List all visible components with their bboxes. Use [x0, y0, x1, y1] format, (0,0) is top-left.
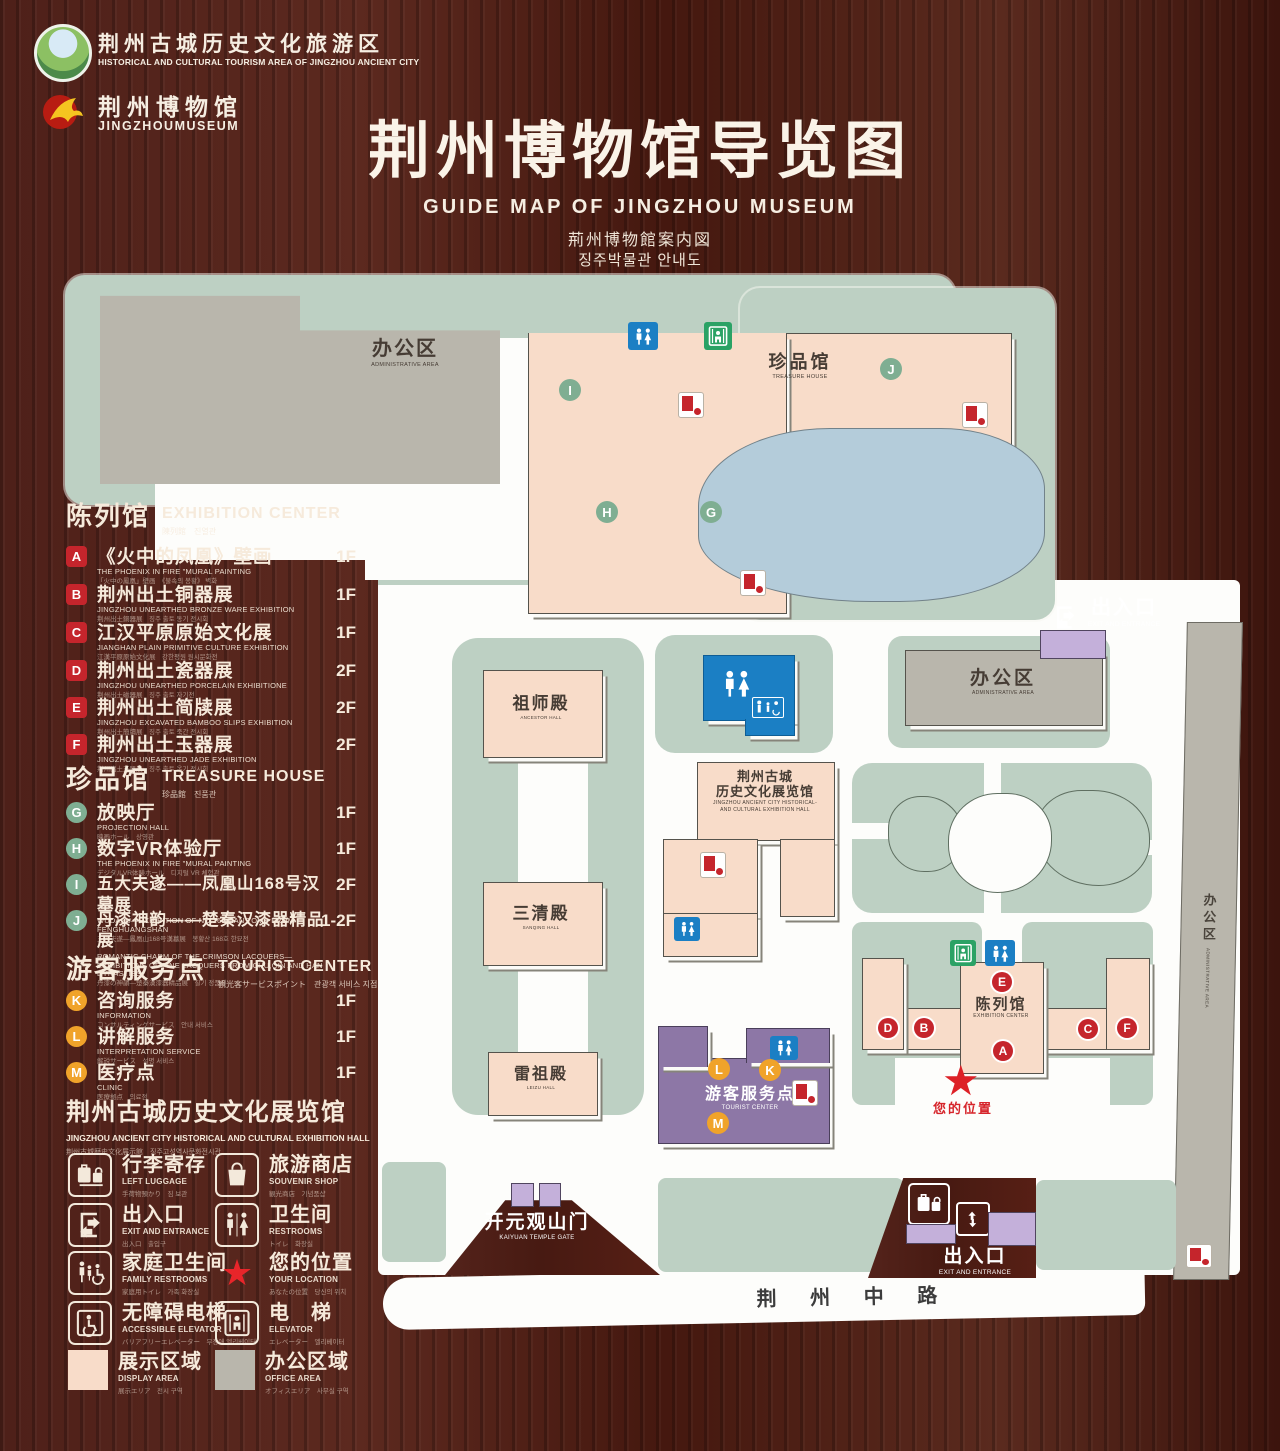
gate-pillar [539, 1183, 561, 1207]
floor-tag: 2F [336, 735, 356, 755]
gate-building [1040, 630, 1106, 659]
marker-g: G [700, 501, 722, 523]
shopping-bag-icon [215, 1153, 259, 1197]
legend-exit-entrance: 出入口 EXIT AND ENTRANCE出入口 출입구 [68, 1203, 218, 1248]
label-tourist-center: 游客服务点 TOURIST CENTER [705, 1086, 795, 1112]
campus-pad-south [658, 1178, 904, 1272]
restroom-icon [770, 1036, 798, 1060]
legend-item-d: D 荆州出土瓷器展 JINGZHOU UNEARTHED PORCELAIN E… [66, 660, 380, 700]
accessible-elevator-icon [700, 852, 726, 878]
courtyard-path [365, 470, 497, 580]
floor-tag: 1-2F [321, 911, 356, 931]
accessible-elevator-icon [740, 570, 766, 596]
exit-icon [68, 1203, 112, 1247]
legend-family-restrooms: 家庭卫生间 FAMILY RESTROOMS家庭用トイレ 가족 화장실 [68, 1251, 218, 1296]
elevator-icon [704, 322, 732, 350]
marker-l: L [708, 1058, 730, 1080]
accessible-elevator-icon [678, 392, 704, 418]
floor-tag: 1F [336, 803, 356, 823]
badge-l: L [66, 1026, 87, 1047]
marker-h: H [596, 501, 618, 523]
label-leizu-hall: 雷祖殿 LEIZU HALL [514, 1066, 568, 1091]
floor-tag: 1F [336, 839, 356, 859]
label-ancestor-hall: 祖师殿 ANCESTOR HALL [513, 694, 570, 720]
legend-item-k: K 咨询服务 INFORMATION コンサルティングサービス 안내 서비스 1… [66, 990, 380, 1030]
marker-e: E [992, 972, 1012, 992]
badge-a: A [66, 546, 87, 567]
label-exit-south: 出入口 EXIT AND ENTRANCE [939, 1246, 1011, 1276]
family-restroom-icon [68, 1251, 112, 1295]
legend-display-area: 展示区域 DISPLAY AREA展示エリア 전시 구역 [68, 1350, 218, 1395]
legend-souvenir-shop: 旅游商店 SOUVENIR SHOP観光商店 기념품샵 [215, 1153, 365, 1198]
legend-your-location: ★ 您的位置 YOUR LOCATIONあなたの位置 당신의 위치 [215, 1251, 365, 1296]
marker-k: K [759, 1059, 781, 1081]
marker-j: J [880, 358, 902, 380]
floor-tag: 1F [336, 623, 356, 643]
restroom-icon [985, 940, 1015, 966]
section-exhibition-center: 陈列馆 EXHIBITION CENTER 陳列館 진열관 [66, 503, 341, 537]
restroom-icon [215, 1203, 259, 1247]
legend-item-a: A 《火中的凤凰》壁画 THE PHOENIX IN FIRE "MURAL P… [66, 546, 380, 586]
marker-f: F [1117, 1018, 1137, 1038]
section-tourist-center: 游客服务点 TOURIST CENTER 観光客サービスポイント 관광객 서비스… [66, 956, 377, 990]
label-exit-northeast: 出入口 EXIT AND ENTRANCE [1088, 597, 1160, 628]
section-treasure-house: 珍品馆 TREASURE HOUSE 珍品館 진품관 [66, 766, 325, 800]
label-exhibition-center: 陈列馆 EXHIBITION CENTER [973, 996, 1028, 1020]
badge-h: H [66, 838, 87, 859]
badge-i: I [66, 874, 87, 895]
label-temple-gate: 开元观山门 KAIYUAN TEMPLE GATE [484, 1212, 589, 1242]
location-star-icon: ★ [215, 1251, 259, 1295]
floor-tag: 1F [336, 547, 356, 567]
badge-d: D [66, 660, 87, 681]
luggage-icon [68, 1153, 112, 1197]
marker-i: I [559, 379, 581, 401]
accessible-elevator-icon [68, 1301, 112, 1345]
office-area-swatch [215, 1350, 255, 1390]
marker-b: B [914, 1018, 934, 1038]
campus-pad-south [1036, 1180, 1176, 1270]
campus-pad-south [382, 1162, 446, 1262]
guide-map-poster: 荆州古城历史文化旅游区 HISTORICAL AND CULTURAL TOUR… [0, 0, 1280, 1451]
legend-item-c: C 江汉平原原始文化展 JIANGHAN PLAIN PRIMITIVE CUL… [66, 622, 380, 662]
floor-tag: 2F [336, 875, 356, 895]
gate-building [906, 1224, 956, 1244]
legend-elevator: 电 梯 ELEVATORエレベーター 엘리베이터 [215, 1301, 365, 1346]
floor-tag: 2F [336, 698, 356, 718]
floor-tag: 1F [336, 1063, 356, 1083]
badge-b: B [66, 584, 87, 605]
your-location-star: ★ [942, 1060, 980, 1102]
label-admin-east: 办公区 ADMINISTRATIVE AREA [970, 668, 1036, 697]
family-restroom-icon [752, 697, 784, 718]
accessible-elevator-icon [962, 402, 988, 428]
luggage-icon [908, 1183, 950, 1225]
floor-tag: 1F [336, 1027, 356, 1047]
legend-item-g: G 放映厅 PROJECTION HALL 映画ホール 상영관 1F [66, 802, 380, 842]
exhibition-hall-heading: 荆州古城历史文化展览馆 JINGZHOU ANCIENT CITY HISTOR… [66, 1092, 382, 1157]
legend-restrooms: 卫生间 RESTROOMSトイレ 화장실 [215, 1203, 365, 1248]
legend-item-h: H 数字VR体验厅 THE PHOENIX IN FIRE "MURAL PAI… [66, 838, 380, 878]
gate-building [988, 1212, 1036, 1246]
legend-item-e: E 荆州出土简牍展 JINGZHOU EXCAVATED BAMBOO SLIP… [66, 697, 380, 737]
label-exhibition-hall: 荆州古城 历史文化展览馆 JINGZHOU ANCIENT CITY HISTO… [713, 770, 817, 813]
legend-accessible-elevator: 无障碍电梯 ACCESSIBLE ELEVATORバリアフリーエレベーター 무장… [68, 1301, 218, 1346]
marker-d: D [878, 1018, 898, 1038]
badge-c: C [66, 622, 87, 643]
restroom-icon [674, 917, 700, 941]
exit-icon [1052, 604, 1079, 631]
legend-item-b: B 荆州出土铜器展 JINGZHOU UNEARTHED BRONZE WARE… [66, 584, 380, 624]
exit-updown-icon [956, 1202, 990, 1236]
legend-item-l: L 讲解服务 INTERPRETATION SERVICE 解説サービス 설명 … [66, 1026, 380, 1066]
marker-a: A [993, 1041, 1013, 1061]
floor-tag: 1F [336, 991, 356, 1011]
elevator-icon [215, 1301, 259, 1345]
legend-sidebar: 陈列馆 EXHIBITION CENTER 陳列館 진열관 A 《火中的凤凰》壁… [60, 0, 382, 1451]
marker-m: M [707, 1112, 729, 1134]
badge-g: G [66, 802, 87, 823]
floor-tag: 1F [336, 585, 356, 605]
label-treasure-house: 珍品馆 TREASURE HOUSE [769, 352, 832, 380]
building-exhibition-hall-east [780, 839, 835, 917]
badge-j: J [66, 910, 87, 931]
gate-pillar [511, 1183, 534, 1207]
courtyard-path [497, 338, 531, 580]
display-area-swatch [68, 1350, 108, 1390]
floor-tag: 2F [336, 661, 356, 681]
badge-e: E [66, 697, 87, 718]
marker-c: C [1078, 1019, 1098, 1039]
building-tourist-center-wing [658, 1026, 708, 1067]
badge-m: M [66, 1062, 87, 1083]
badge-f: F [66, 734, 87, 755]
building-restroom-annex [745, 719, 795, 736]
accessible-elevator-icon [1186, 1244, 1212, 1268]
legend-left-luggage: 行李寄存 LEFT LUGGAGE手荷物預かり 짐 보관 [68, 1153, 218, 1198]
restroom-icon [628, 322, 658, 350]
elevator-icon [950, 940, 976, 966]
label-your-location: 您的位置 [933, 1098, 993, 1117]
legend-office-area: 办公区域 OFFICE AREAオフィスエリア 사무실 구역 [215, 1350, 365, 1395]
label-sanqing-hall: 三清殿 SANQING HALL [513, 904, 570, 930]
accessible-elevator-icon [792, 1080, 818, 1106]
badge-k: K [66, 990, 87, 1011]
